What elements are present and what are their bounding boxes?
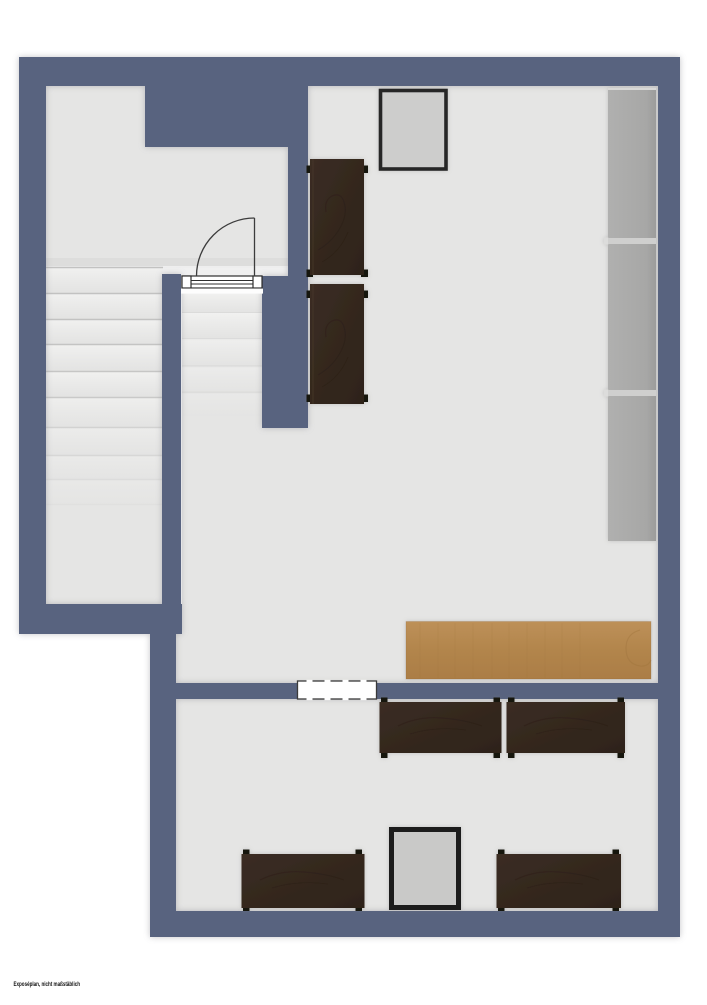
- svg-text:Exposéplan, nicht maßstäblich: Exposéplan, nicht maßstäblich: [14, 981, 81, 988]
